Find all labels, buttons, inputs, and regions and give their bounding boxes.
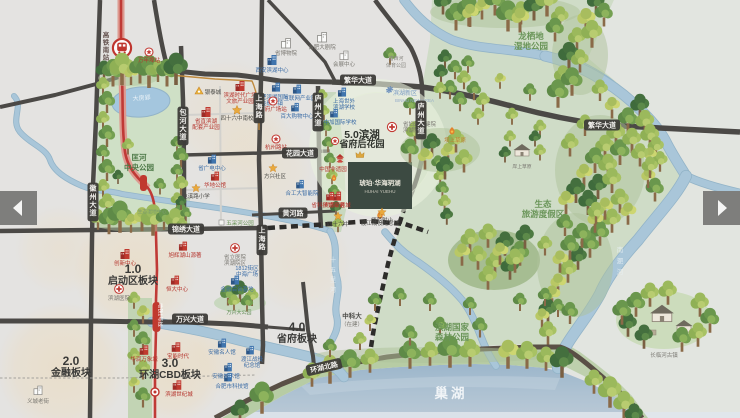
svg-text:花园大道: 花园大道 — [286, 149, 314, 158]
svg-text:中科大: 中科大 — [342, 311, 362, 320]
svg-text:河: 河 — [180, 116, 187, 125]
svg-text:百大购物中心: 百大购物中心 — [280, 112, 314, 120]
svg-text:省直滨湖: 省直滨湖 — [195, 117, 218, 125]
svg-text:万兴大公园: 万兴大公园 — [226, 309, 251, 316]
svg-text:师范附小: 师范附小 — [371, 216, 394, 224]
svg-text:铁: 铁 — [102, 38, 110, 47]
svg-text:道: 道 — [180, 132, 187, 141]
svg-text:滨湖世纪城: 滨湖世纪城 — [165, 390, 193, 398]
svg-text:包: 包 — [180, 108, 187, 117]
svg-text:坝上草原: 坝上草原 — [444, 136, 467, 144]
svg-text:金融板块: 金融板块 — [50, 366, 92, 379]
svg-text:1812街区: 1812街区 — [235, 264, 259, 272]
svg-text:大: 大 — [180, 124, 187, 133]
svg-text:匡河: 匡河 — [132, 152, 147, 162]
svg-text:中海广场: 中海广场 — [236, 270, 259, 278]
svg-text:四十六中: 四十六中 — [327, 220, 349, 228]
svg-text:森林公园: 森林公园 — [435, 332, 469, 342]
svg-text:合肥市科技馆: 合肥市科技馆 — [215, 382, 249, 390]
svg-text:高: 高 — [103, 30, 110, 39]
svg-text:繁华大道: 繁华大道 — [344, 76, 372, 85]
svg-text:4.0: 4.0 — [289, 320, 306, 334]
svg-text:文旅产业园: 文旅产业园 — [226, 97, 254, 105]
svg-text:中国非遗园: 中国非遗园 — [319, 165, 347, 173]
svg-text:会展中心: 会展中心 — [333, 60, 356, 68]
svg-text:华地公馆: 华地公馆 — [204, 181, 227, 189]
svg-text:滨湖新区: 滨湖新区 — [393, 89, 417, 97]
svg-text:海: 海 — [259, 234, 266, 243]
svg-text:中加国际学校: 中加国际学校 — [323, 118, 357, 126]
svg-text:方兴社区: 方兴社区 — [264, 172, 287, 180]
svg-text:纪念馆: 纪念馆 — [244, 361, 261, 369]
svg-text:巢湖: 巢湖 — [434, 385, 468, 401]
svg-text:五: 五 — [330, 267, 336, 274]
svg-text:南: 南 — [103, 45, 110, 54]
svg-text:州: 州 — [417, 111, 425, 119]
svg-text:省立医院: 省立医院 — [224, 253, 247, 261]
svg-text:十: 十 — [330, 256, 336, 264]
svg-text:站: 站 — [103, 53, 110, 62]
svg-text:繁华大道: 繁华大道 — [588, 121, 616, 130]
svg-text:华润万象城: 华润万象城 — [130, 355, 158, 363]
svg-text:省府板块: 省府板块 — [276, 332, 318, 345]
svg-text:万兴大道: 万兴大道 — [175, 315, 204, 324]
svg-text:合工大智能院: 合工大智能院 — [285, 189, 319, 197]
svg-text:上海世外: 上海世外 — [333, 97, 356, 105]
svg-text:（在建）: （在建） — [341, 320, 363, 328]
svg-text:河: 河 — [617, 268, 624, 276]
svg-text:生态湿地中心: 生态湿地中心 — [138, 208, 167, 215]
svg-text:省科技馆新馆: 省科技馆新馆 — [311, 201, 345, 209]
svg-text:屯溪路小学: 屯溪路小学 — [182, 192, 210, 200]
svg-text:琥珀·华海玥湖: 琥珀·华海玥湖 — [359, 178, 401, 187]
svg-text:省广电中心: 省广电中心 — [198, 164, 226, 172]
svg-text:州: 州 — [89, 193, 97, 201]
svg-text:塘西河: 塘西河 — [388, 55, 403, 62]
svg-text:道: 道 — [90, 208, 97, 217]
svg-text:大: 大 — [90, 200, 97, 209]
svg-text:渡江战役: 渡江战役 — [241, 355, 264, 363]
svg-text:岸上草原: 岸上草原 — [512, 163, 531, 170]
svg-text:1.0: 1.0 — [125, 262, 142, 276]
svg-text:五采河公园: 五采河公园 — [226, 219, 254, 227]
svg-text:滨湖医院: 滨湖医院 — [108, 294, 131, 302]
svg-text:银泰城: 银泰城 — [205, 88, 222, 96]
svg-text:生态: 生态 — [534, 199, 552, 209]
svg-text:滨湖国家: 滨湖国家 — [435, 322, 470, 332]
svg-text:安徽名人馆: 安徽名人馆 — [208, 348, 236, 356]
svg-text:长临河古镇: 长临河古镇 — [650, 351, 678, 359]
svg-text:道: 道 — [315, 118, 322, 127]
svg-text:路: 路 — [259, 242, 267, 251]
svg-text:河: 河 — [330, 286, 336, 294]
svg-text:里: 里 — [330, 277, 336, 284]
svg-text:万年埠站: 万年埠站 — [138, 56, 161, 64]
svg-text:BINHU NEW AREA: BINHU NEW AREA — [395, 98, 434, 103]
svg-text:上: 上 — [256, 94, 263, 103]
svg-text:大: 大 — [315, 110, 322, 119]
svg-text:州: 州 — [314, 103, 322, 111]
svg-text:旭辉湖山源著: 旭辉湖山源著 — [168, 251, 202, 259]
svg-text:环湖CBD板块: 环湖CBD板块 — [139, 368, 202, 381]
svg-text:互联网产业园: 互联网产业园 — [283, 94, 317, 102]
svg-text:锦绣大道: 锦绣大道 — [172, 225, 200, 234]
svg-text:滨湖时代广场: 滨湖时代广场 — [223, 91, 257, 99]
svg-text:上: 上 — [259, 226, 266, 235]
svg-text:地铁1号线: 地铁1号线 — [156, 303, 164, 327]
svg-text:合肥大剧院: 合肥大剧院 — [308, 43, 336, 51]
svg-text:旅游度假区: 旅游度假区 — [521, 209, 565, 219]
svg-text:道: 道 — [418, 126, 425, 135]
svg-text:省博物院: 省博物院 — [275, 49, 298, 57]
svg-text:西安滨湖中心: 西安滨湖中心 — [255, 66, 289, 74]
svg-text:路: 路 — [256, 110, 264, 119]
svg-text:2.0: 2.0 — [63, 354, 80, 368]
svg-text:义城老街: 义城老街 — [27, 397, 50, 405]
svg-text:中央公园: 中央公园 — [124, 162, 154, 172]
svg-text:3.0: 3.0 — [162, 356, 179, 370]
svg-text:大: 大 — [418, 118, 425, 127]
svg-text:金融后台基地: 金融后台基地 — [220, 285, 254, 293]
svg-text:龙栖地: 龙栖地 — [517, 31, 544, 41]
svg-text:庐: 庐 — [418, 102, 425, 111]
svg-text:启动区板块: 启动区板块 — [108, 274, 159, 287]
svg-text:徽: 徽 — [89, 184, 98, 193]
svg-text:四十六中南校: 四十六中南校 — [220, 114, 254, 122]
svg-text:黄河路: 黄河路 — [283, 209, 305, 218]
svg-text:淝: 淝 — [617, 256, 624, 265]
svg-text:省府后花园: 省府后花园 — [338, 138, 384, 149]
svg-text:湿地公园: 湿地公园 — [514, 41, 548, 51]
svg-text:配套产业园: 配套产业园 — [192, 123, 220, 131]
svg-text:体育公园: 体育公园 — [386, 62, 406, 69]
svg-text:庐: 庐 — [315, 94, 322, 103]
svg-text:HUHAI YUEHU: HUHAI YUEHU — [365, 189, 396, 194]
svg-text:南: 南 — [617, 245, 624, 254]
svg-text:恒大中心: 恒大中心 — [166, 285, 189, 293]
svg-text:海: 海 — [256, 102, 263, 111]
